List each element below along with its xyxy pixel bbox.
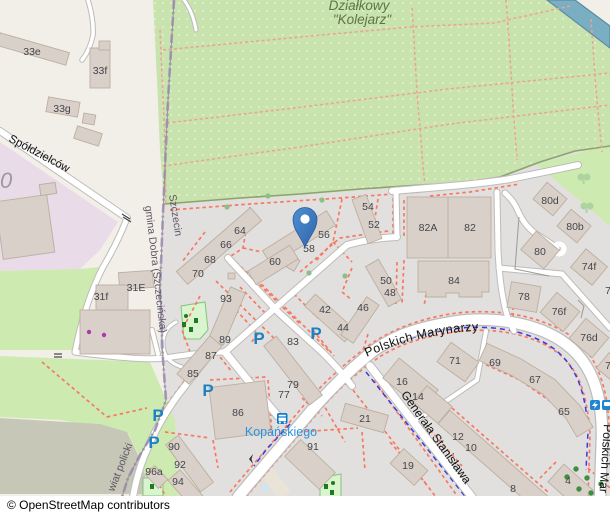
svg-text:91: 91 bbox=[307, 441, 319, 453]
svg-text:82A: 82A bbox=[419, 222, 438, 234]
svg-text:12: 12 bbox=[452, 431, 464, 443]
svg-text:87: 87 bbox=[205, 350, 217, 362]
svg-text:64: 64 bbox=[234, 225, 246, 237]
svg-text:69: 69 bbox=[489, 357, 501, 369]
svg-text:21: 21 bbox=[359, 413, 371, 425]
svg-text:10: 10 bbox=[465, 442, 477, 454]
svg-text:8: 8 bbox=[510, 483, 516, 495]
svg-text:33g: 33g bbox=[53, 103, 71, 115]
svg-text:96a: 96a bbox=[145, 466, 163, 478]
svg-text:42: 42 bbox=[319, 304, 331, 316]
svg-text:4: 4 bbox=[565, 475, 571, 487]
svg-text:46: 46 bbox=[357, 302, 369, 314]
svg-text:80: 80 bbox=[534, 246, 546, 258]
svg-text:56: 56 bbox=[318, 229, 330, 241]
svg-text:86: 86 bbox=[232, 407, 244, 419]
svg-text:83: 83 bbox=[287, 336, 299, 348]
svg-text:66: 66 bbox=[220, 239, 232, 251]
svg-text:60: 60 bbox=[269, 256, 281, 268]
svg-text:85: 85 bbox=[187, 368, 199, 380]
svg-text:P: P bbox=[202, 381, 213, 400]
svg-text:68: 68 bbox=[204, 254, 216, 266]
svg-text:90: 90 bbox=[168, 441, 180, 453]
svg-text:31f: 31f bbox=[94, 291, 109, 303]
svg-text:7: 7 bbox=[605, 285, 610, 297]
svg-text:76d: 76d bbox=[580, 332, 598, 344]
svg-text:71: 71 bbox=[449, 355, 461, 367]
svg-text:82: 82 bbox=[464, 222, 476, 234]
svg-text:P: P bbox=[148, 433, 159, 452]
svg-text:16: 16 bbox=[396, 376, 408, 388]
svg-text:P: P bbox=[310, 324, 321, 343]
svg-text:94: 94 bbox=[172, 476, 184, 488]
svg-text:33f: 33f bbox=[93, 65, 108, 77]
svg-text:19: 19 bbox=[402, 460, 414, 472]
svg-text:Kopańskiego: Kopańskiego bbox=[245, 425, 317, 439]
svg-text:54: 54 bbox=[362, 201, 374, 213]
svg-text:44: 44 bbox=[337, 322, 349, 334]
svg-text:48: 48 bbox=[384, 287, 396, 299]
svg-text:"Kolejarz": "Kolejarz" bbox=[333, 12, 393, 27]
svg-text:76f: 76f bbox=[552, 306, 567, 318]
svg-text:80b: 80b bbox=[566, 221, 584, 233]
svg-text:77: 77 bbox=[278, 389, 290, 401]
svg-text:74f: 74f bbox=[582, 261, 597, 273]
svg-text:65: 65 bbox=[558, 406, 570, 418]
svg-text:50: 50 bbox=[380, 275, 392, 287]
svg-text:31E: 31E bbox=[127, 282, 146, 294]
svg-text:52: 52 bbox=[368, 219, 380, 231]
svg-text:92: 92 bbox=[174, 459, 186, 471]
svg-text:80d: 80d bbox=[541, 195, 559, 207]
svg-text:7: 7 bbox=[605, 360, 610, 372]
svg-text:84: 84 bbox=[448, 275, 460, 287]
svg-text:70: 70 bbox=[192, 268, 204, 280]
svg-text:67: 67 bbox=[529, 374, 541, 386]
svg-text:P: P bbox=[253, 329, 264, 348]
svg-text:78: 78 bbox=[518, 291, 530, 303]
svg-text:89: 89 bbox=[219, 334, 231, 346]
svg-text:93: 93 bbox=[220, 293, 232, 305]
svg-text:P: P bbox=[152, 406, 163, 425]
svg-text:33e: 33e bbox=[23, 46, 41, 58]
svg-text:0: 0 bbox=[0, 168, 13, 193]
